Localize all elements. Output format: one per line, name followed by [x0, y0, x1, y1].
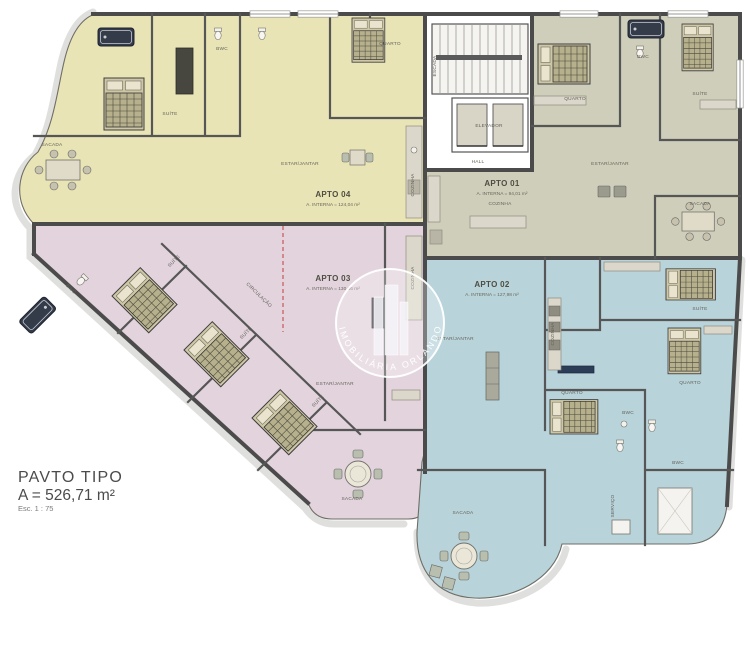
room-label: ESTAR/JANTAR: [281, 161, 319, 167]
toilet-icon: [649, 420, 656, 432]
bed-icon: [550, 400, 598, 434]
room-label: COZINHA: [550, 322, 556, 346]
apto-02-label: APTO 02: [474, 280, 510, 289]
service-counter: [392, 390, 420, 400]
room-label: BWC: [622, 410, 634, 416]
plan-total-area: A = 526,71 m²: [18, 487, 115, 504]
room-label: SUÍTE: [692, 90, 707, 97]
room-label: BWC: [672, 460, 684, 466]
kitchen-counter: [470, 216, 526, 228]
room-label: COZINHA: [410, 173, 416, 197]
kitchen-counter: [406, 126, 422, 218]
bed-icon: [668, 328, 701, 374]
lounge-chair: [429, 565, 442, 578]
elevator-label: ELEVADOR: [475, 123, 503, 129]
sofa: [486, 352, 499, 400]
elevators: ELEVADOR: [452, 98, 528, 152]
watermark: IMOBILIÁRIA ORLANDO: [336, 269, 444, 377]
bed-icon: [682, 24, 713, 71]
room-label: QUARTO: [379, 41, 401, 47]
room-label: ESTAR/JANTAR: [316, 381, 354, 387]
plan-title: PAVTO TIPO: [18, 469, 123, 486]
laundry-tank: [612, 520, 630, 534]
bathtub-icon: [19, 296, 57, 334]
bed-icon: [538, 44, 590, 84]
room-label: BWC: [637, 54, 649, 60]
toilet-icon: [259, 28, 266, 40]
bed-icon: [104, 78, 144, 130]
fridge: [430, 230, 442, 244]
room-label: SACADA: [453, 510, 475, 516]
plan-scale: Esc. 1 : 75: [18, 504, 53, 513]
tv-panel: [558, 366, 594, 373]
appliance: [549, 306, 560, 316]
sink-icon: [411, 147, 417, 153]
room-label: SERVIÇO: [610, 494, 616, 517]
bathtub-icon: [628, 20, 664, 38]
room-label: SUÍTE: [692, 305, 707, 312]
stairs-label: ESCADA: [432, 55, 438, 77]
wardrobe: [176, 48, 193, 94]
toilet-icon: [617, 440, 624, 452]
hall-label: HALL: [472, 159, 485, 165]
wardrobe: [704, 326, 732, 334]
toilet-icon: [215, 28, 222, 40]
floorplan-page: ESCADA ELEVADOR HALL: [0, 0, 750, 667]
armchair: [614, 186, 626, 197]
apto-01-area: A. INTERNA = 94,01 m²: [476, 191, 527, 197]
kitchen-counter: [428, 176, 440, 222]
apto-02-area: A. INTERNA = 127,98 m²: [465, 292, 519, 298]
bed-icon: [352, 18, 385, 62]
room-label: COZINHA: [489, 201, 513, 207]
room-label: BWC: [216, 46, 228, 52]
room-label: SACADA: [342, 496, 364, 502]
floorplan-drawing: ESCADA ELEVADOR HALL: [0, 0, 750, 667]
wardrobe: [700, 100, 736, 109]
apto-04-label: APTO 04: [315, 190, 351, 199]
room-label: QUARTO: [564, 96, 586, 102]
apto-03-label: APTO 03: [315, 274, 351, 283]
wardrobe: [604, 262, 660, 271]
sink-icon: [621, 421, 627, 427]
room-label: ESTAR/JANTAR: [591, 161, 629, 167]
bathtub-icon: [98, 28, 134, 46]
title-block: PAVTO TIPO A = 526,71 m² Esc. 1 : 75: [18, 469, 123, 513]
room-label: QUARTO: [679, 380, 701, 386]
stairs: ESCADA: [432, 24, 528, 94]
room-label: QUARTO: [561, 390, 583, 396]
room-label: SACADA: [690, 201, 712, 207]
bed-icon: [666, 269, 715, 300]
apto-04-area: A. INTERNA = 124,04 m²: [306, 202, 360, 208]
room-label: SUÍTE: [162, 110, 177, 117]
room-label: SACADA: [42, 142, 64, 148]
armchair: [598, 186, 610, 197]
lounge-chair: [442, 577, 455, 590]
apto-01-label: APTO 01: [484, 179, 520, 188]
